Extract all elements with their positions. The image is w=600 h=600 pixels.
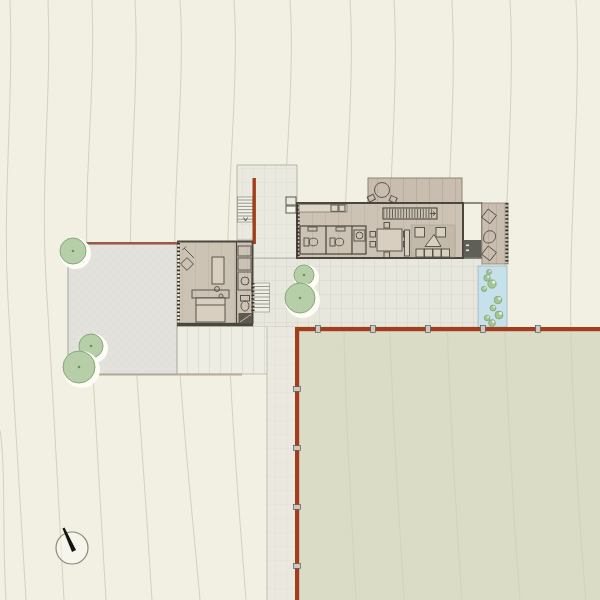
tree [63,351,100,388]
spine-wall [253,178,256,244]
wall-post [294,505,301,510]
wall-post [294,387,301,392]
armchair [415,228,425,238]
wall-post [426,326,431,333]
dining-table [377,229,402,251]
aquatic-plant [481,286,486,291]
kitchen-counter [299,205,347,213]
retaining-wall-vertical [295,327,299,600]
wall-post [371,326,376,333]
aquatic-plant [490,305,496,311]
aquatic-plant [489,320,496,327]
retaining-wall-horizontal [295,327,600,331]
wardrobe [212,257,224,284]
aquatic-plant [488,280,496,288]
shower [239,313,253,324]
sofa [416,249,450,257]
wall-post [294,564,301,569]
aquatic-plant [495,311,503,319]
wall-post [536,326,541,333]
plant-highlight [499,312,502,315]
tree [285,283,320,318]
plant-highlight [484,287,486,289]
plant-highlight [489,270,491,272]
east-deck [482,203,508,264]
aquatic-plant [494,296,502,304]
aquatic-plant [484,275,490,281]
skylight-stairs [383,208,437,219]
pool [478,266,507,327]
plant-highlight [487,276,489,278]
lower-walkway [267,327,295,600]
aquatic-plant [487,270,492,275]
wall-post [316,326,321,333]
aquatic-plant [484,315,490,321]
living-area [405,225,456,257]
wall-post [294,446,301,451]
plant-highlight [492,281,495,284]
entry-stairs [238,197,254,222]
tree [60,238,91,269]
plant-highlight [498,297,501,300]
roof-terrace [367,178,462,205]
fireplace [464,240,482,258]
plant-highlight [492,320,494,322]
armchair [436,228,446,238]
sideboard [405,230,410,256]
plant-highlight [493,306,495,308]
wall-post [481,326,486,333]
plant-highlight [487,316,489,318]
exterior-stairs [253,283,270,312]
site-plan-svg [0,0,600,600]
site-plan [0,0,600,600]
